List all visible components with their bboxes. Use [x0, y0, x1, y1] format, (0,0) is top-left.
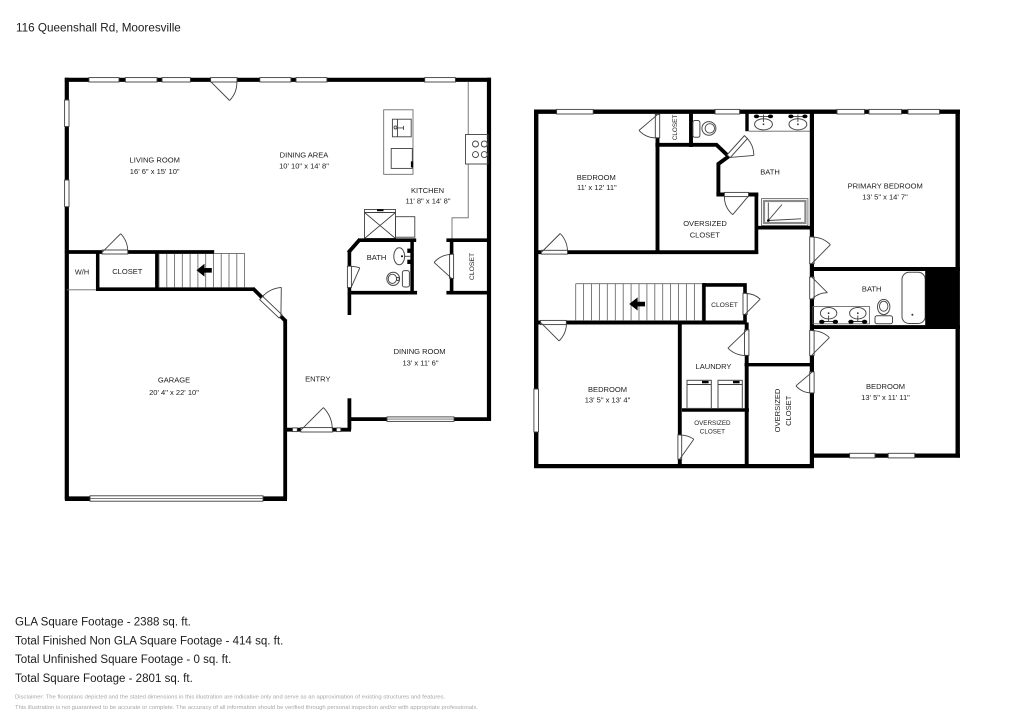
svg-text:20' 4" x 22' 10": 20' 4" x 22' 10" [149, 388, 199, 397]
svg-text:CLOSET: CLOSET [784, 395, 793, 426]
svg-text:ENTRY: ENTRY [305, 375, 330, 384]
svg-text:OVERSIZED: OVERSIZED [694, 420, 731, 427]
svg-text:11' 8" x 14' 8": 11' 8" x 14' 8" [405, 197, 450, 206]
svg-text:CLOSET: CLOSET [700, 429, 725, 436]
svg-text:CLOSET: CLOSET [469, 253, 476, 280]
svg-text:BATH: BATH [367, 253, 387, 262]
svg-text:LIVING ROOM: LIVING ROOM [130, 156, 180, 165]
svg-text:BATH: BATH [760, 167, 780, 176]
svg-text:OVERSIZED: OVERSIZED [773, 388, 782, 432]
svg-text:16' 6" x 15' 10": 16' 6" x 15' 10" [130, 167, 180, 176]
svg-text:Total Square Footage - 2801 sq: Total Square Footage - 2801 sq. ft. [15, 673, 193, 685]
svg-text:Total Unfinished Square Footag: Total Unfinished Square Footage - 0 sq. … [15, 654, 231, 666]
svg-text:OVERSIZED: OVERSIZED [683, 219, 727, 228]
svg-text:GARAGE: GARAGE [158, 376, 190, 385]
svg-text:CLOSET: CLOSET [672, 115, 679, 141]
svg-text:PRIMARY BEDROOM: PRIMARY BEDROOM [848, 182, 923, 191]
svg-text:10' 10" x 14' 8": 10' 10" x 14' 8" [279, 162, 329, 171]
svg-text:13' x 11' 6": 13' x 11' 6" [402, 359, 438, 368]
svg-text:This illustration is not guara: This illustration is not guaranteed to b… [15, 705, 478, 711]
svg-text:KITCHEN: KITCHEN [411, 186, 444, 195]
svg-text:LAUNDRY: LAUNDRY [696, 362, 732, 371]
svg-text:11' x 12' 11": 11' x 12' 11" [577, 183, 617, 192]
svg-text:13' 5" x 11' 11": 13' 5" x 11' 11" [861, 393, 910, 402]
svg-text:DINING AREA: DINING AREA [280, 151, 330, 160]
svg-text:116 Queenshall Rd, Mooresville: 116 Queenshall Rd, Mooresville [16, 22, 181, 35]
svg-text:DINING ROOM: DINING ROOM [394, 347, 446, 356]
svg-text:13' 5" x 14' 7": 13' 5" x 14' 7" [862, 192, 908, 201]
svg-text:GLA Square Footage - 2388 sq.: GLA Square Footage - 2388 sq. ft. [15, 617, 191, 629]
svg-text:CLOSET: CLOSET [711, 302, 738, 309]
svg-text:Total Finished Non GLA Square: Total Finished Non GLA Square Footage - … [15, 635, 283, 647]
svg-text:Disclaimer: The floorplans dep: Disclaimer: The floorplans depicted and … [15, 694, 446, 700]
svg-text:BATH: BATH [862, 284, 882, 293]
svg-text:13' 5" x 13' 4": 13' 5" x 13' 4" [585, 396, 631, 405]
svg-text:BEDROOM: BEDROOM [577, 173, 616, 182]
svg-text:BEDROOM: BEDROOM [866, 382, 905, 391]
svg-text:CLOSET: CLOSET [690, 231, 721, 240]
svg-text:BEDROOM: BEDROOM [588, 385, 627, 394]
svg-text:CLOSET: CLOSET [112, 267, 143, 276]
svg-text:W/H: W/H [75, 268, 89, 277]
